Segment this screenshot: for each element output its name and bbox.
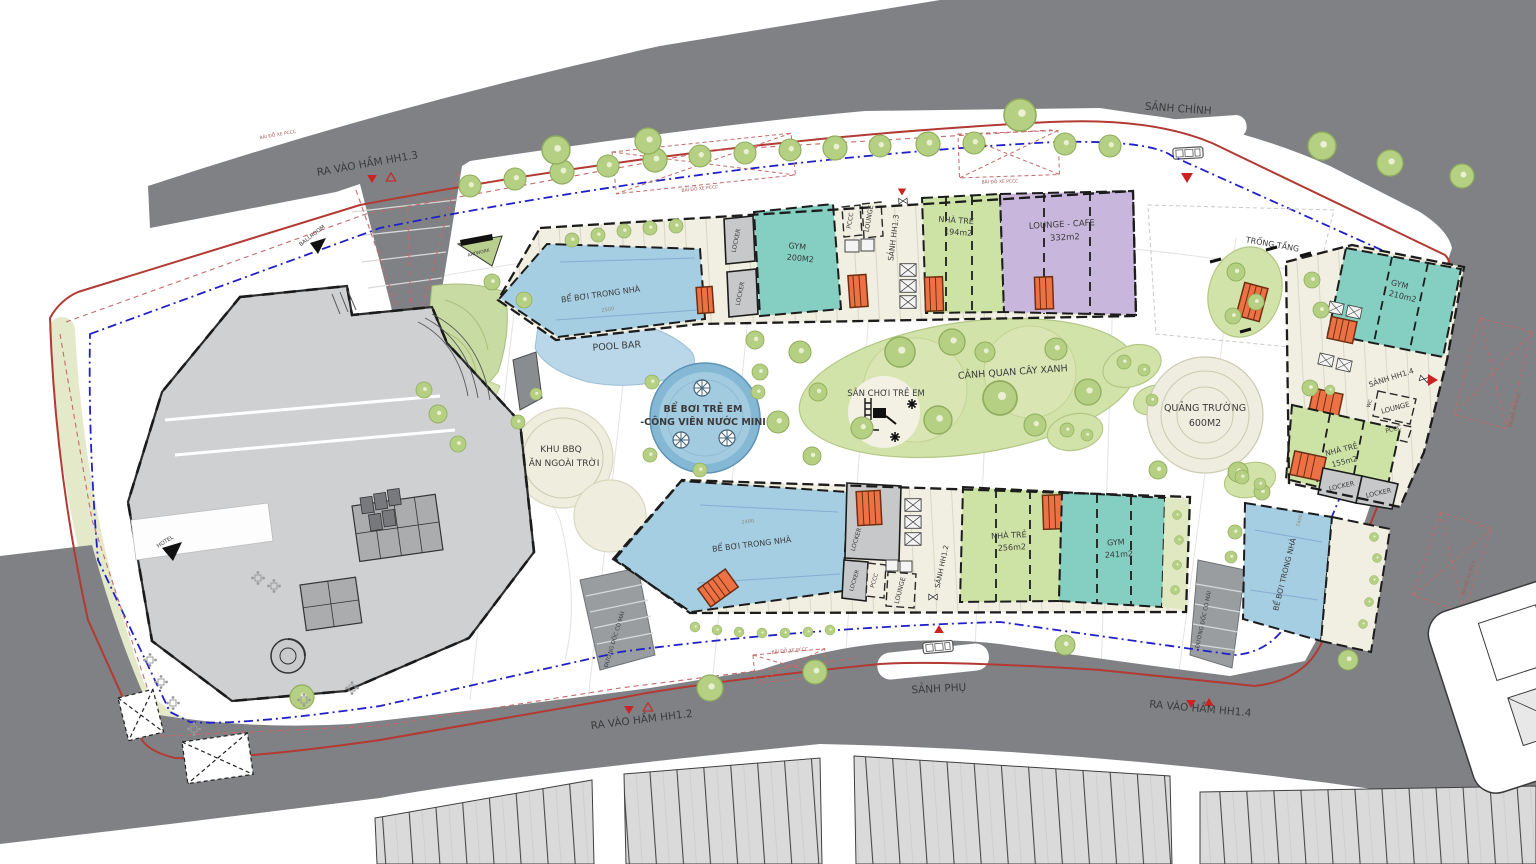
- umbrella-icon: [673, 432, 689, 448]
- label-gym-241-area: 241m2: [1105, 549, 1134, 559]
- label-gym-200: GYM: [788, 241, 807, 252]
- label-bbq-1: KHU BBQ: [540, 445, 582, 455]
- site-plan-drawing: RA VÀO HẦM HH1.3 SẢNH CHÍNH SẢNH PHỤ RA …: [0, 0, 1536, 864]
- plaza: [1147, 357, 1263, 473]
- umbrella-icon: [719, 430, 735, 446]
- umbrella-icon: [694, 380, 710, 396]
- label-kids-pool-1: BỂ BƠI TRẺ EM: [664, 402, 743, 415]
- hotel-core: [300, 577, 362, 630]
- car-icon: [923, 640, 954, 654]
- label-playground: SÂN CHƠI TRẺ EM: [847, 387, 925, 399]
- car-icon: [1173, 147, 1204, 160]
- label-nursery-256-area: 256m2: [998, 542, 1027, 552]
- label-bbq-2: - ĂN NGOÀI TRỜI: [523, 457, 600, 469]
- label-plaza-2: 600M2: [1189, 418, 1221, 429]
- lounge-cafe-room: [1000, 191, 1136, 315]
- label-gym-241: GYM: [1107, 538, 1125, 548]
- spiral-stair-icon: [271, 639, 305, 673]
- label-kids-pool-2: -CÔNG VIÊN NƯỚC MINI: [640, 416, 766, 428]
- label-plaza-1: QUẢNG TRƯỜNG: [1164, 402, 1246, 414]
- site-plan: RA VÀO HẦM HH1.3 SẢNH CHÍNH SẢNH PHỤ RA …: [0, 0, 1536, 864]
- label-lounge-cafe-area: 332m2: [1050, 232, 1080, 244]
